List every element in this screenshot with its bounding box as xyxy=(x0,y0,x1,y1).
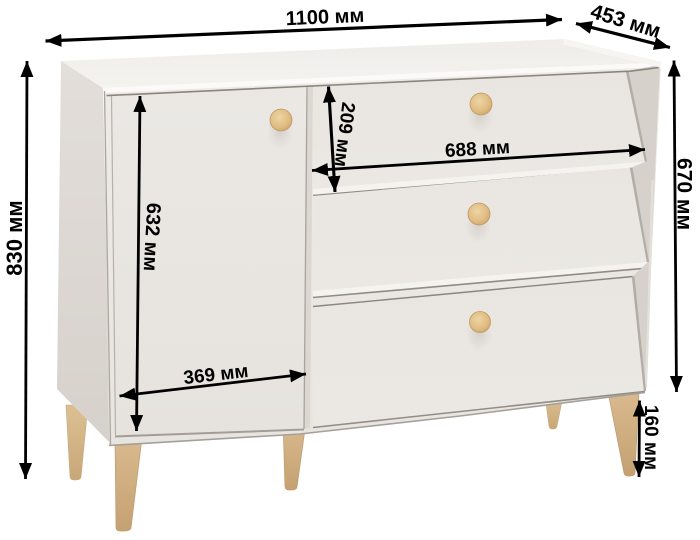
svg-text:830 мм: 830 мм xyxy=(2,200,27,275)
svg-text:1100 мм: 1100 мм xyxy=(285,5,364,30)
svg-text:670 мм: 670 мм xyxy=(673,158,696,230)
svg-text:160 мм: 160 мм xyxy=(640,405,661,470)
svg-text:632 мм: 632 мм xyxy=(139,202,165,272)
svg-text:688 мм: 688 мм xyxy=(444,137,510,162)
